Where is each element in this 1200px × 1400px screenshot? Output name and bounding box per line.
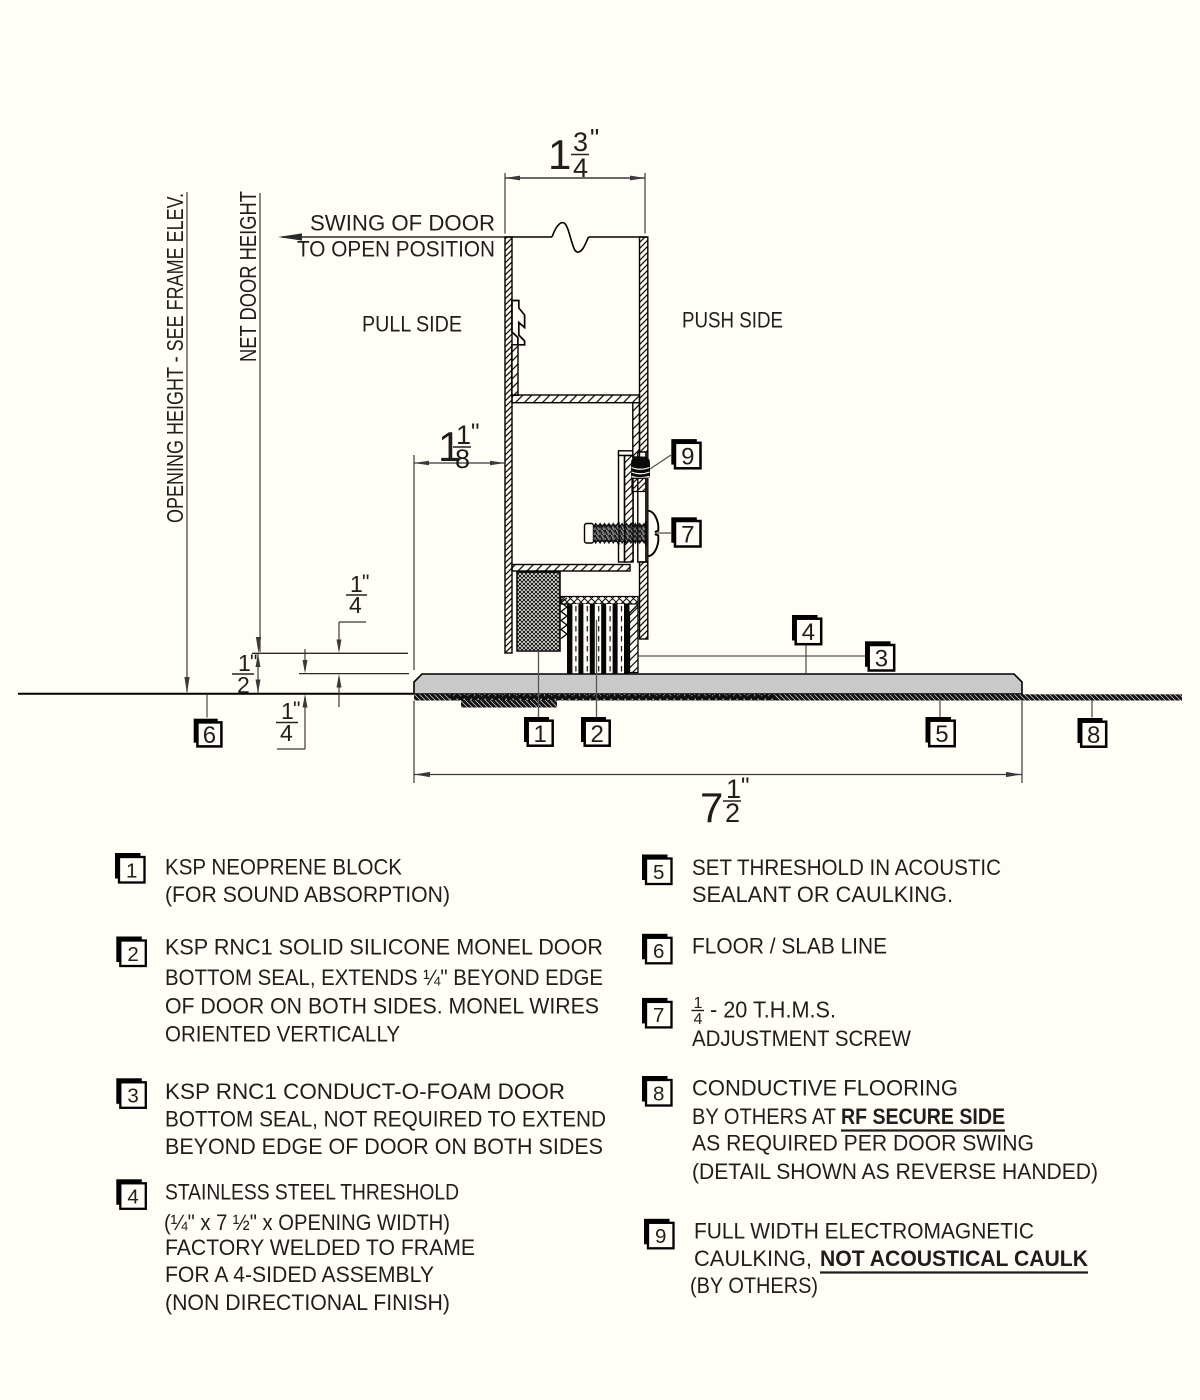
svg-text:8: 8 [1087, 722, 1100, 749]
svg-text:2: 2 [237, 672, 250, 698]
svg-text:- 20 T.H.M.S.: - 20 T.H.M.S. [710, 997, 836, 1023]
svg-text:6: 6 [203, 722, 216, 749]
svg-text:": " [362, 571, 369, 594]
svg-text:8: 8 [653, 1082, 664, 1105]
svg-text:NET DOOR HEIGHT: NET DOOR HEIGHT [235, 191, 261, 362]
svg-text:4: 4 [349, 592, 362, 618]
svg-text:FOR A 4-SIDED ASSEMBLY: FOR A 4-SIDED ASSEMBLY [165, 1262, 434, 1287]
svg-text:5: 5 [653, 861, 664, 884]
svg-text:(¼" x 7 ½" x OPENING WIDTH): (¼" x 7 ½" x OPENING WIDTH) [164, 1210, 450, 1235]
svg-text:2: 2 [591, 721, 604, 748]
svg-text:OPENING HEIGHT - SEE FRAME ELE: OPENING HEIGHT - SEE FRAME ELEV. [162, 193, 188, 523]
svg-text:7: 7 [681, 521, 694, 548]
svg-text:FACTORY WELDED TO FRAME: FACTORY WELDED TO FRAME [165, 1235, 475, 1260]
svg-text:": " [590, 123, 599, 153]
svg-text:5: 5 [935, 721, 948, 748]
svg-text:PULL SIDE: PULL SIDE [362, 312, 462, 337]
svg-text:CONDUCTIVE FLOORING: CONDUCTIVE FLOORING [692, 1076, 958, 1101]
svg-text:(BY OTHERS): (BY OTHERS) [690, 1273, 818, 1298]
svg-text:3: 3 [127, 1085, 138, 1108]
svg-text:ADJUSTMENT SCREW: ADJUSTMENT SCREW [692, 1026, 911, 1051]
svg-text:4: 4 [280, 720, 293, 746]
svg-text:NOT ACOUSTICAL CAULK: NOT ACOUSTICAL CAULK [820, 1246, 1088, 1271]
svg-text:BOTTOM SEAL, EXTENDS ¼" BEYOND: BOTTOM SEAL, EXTENDS ¼" BEYOND EDGE [165, 965, 603, 990]
svg-text:RF SECURE SIDE: RF SECURE SIDE [841, 1104, 1005, 1129]
svg-text:BOTTOM SEAL, NOT REQUIRED TO E: BOTTOM SEAL, NOT REQUIRED TO EXTEND [165, 1107, 606, 1132]
svg-text:1: 1 [694, 995, 703, 1012]
svg-text:9: 9 [681, 443, 694, 470]
svg-text:PUSH SIDE: PUSH SIDE [682, 308, 783, 333]
svg-text:KSP RNC1 CONDUCT-O-FOAM DOOR: KSP RNC1 CONDUCT-O-FOAM DOOR [165, 1079, 565, 1104]
svg-text:1: 1 [534, 721, 547, 748]
svg-text:(FOR SOUND ABSORPTION): (FOR SOUND ABSORPTION) [165, 882, 450, 907]
svg-text:KSP RNC1 SOLID SILICONE MONEL: KSP RNC1 SOLID SILICONE MONEL DOOR [165, 935, 603, 960]
svg-text:OF DOOR ON BOTH SIDES. MONEL W: OF DOOR ON BOTH SIDES. MONEL WIRES [165, 994, 599, 1019]
svg-text:1: 1 [548, 131, 571, 178]
svg-text:4: 4 [127, 1186, 138, 1209]
svg-text:FULL WIDTH ELECTROMAGNETIC: FULL WIDTH ELECTROMAGNETIC [694, 1219, 1034, 1244]
svg-text:7: 7 [653, 1004, 664, 1027]
svg-text:KSP NEOPRENE BLOCK: KSP NEOPRENE BLOCK [165, 855, 402, 880]
svg-text:6: 6 [653, 940, 664, 963]
svg-text:8: 8 [455, 444, 470, 474]
svg-text:7: 7 [700, 784, 723, 831]
svg-text:BEYOND EDGE OF DOOR ON BOTH SI: BEYOND EDGE OF DOOR ON BOTH SIDES [165, 1134, 603, 1159]
svg-text:": " [471, 419, 480, 446]
svg-text:2: 2 [725, 798, 740, 828]
svg-text:SET THRESHOLD IN ACOUSTIC: SET THRESHOLD IN ACOUSTIC [692, 855, 1001, 880]
svg-text:": " [741, 773, 750, 800]
svg-text:AS REQUIRED PER DOOR SWING: AS REQUIRED PER DOOR SWING [692, 1131, 1034, 1156]
svg-text:": " [293, 698, 300, 721]
svg-text:(NON DIRECTIONAL FINISH): (NON DIRECTIONAL FINISH) [165, 1290, 450, 1315]
svg-text:9: 9 [655, 1225, 666, 1248]
svg-text:FLOOR / SLAB LINE: FLOOR / SLAB LINE [692, 934, 887, 959]
svg-text:4: 4 [802, 619, 815, 646]
svg-text:ORIENTED VERTICALLY: ORIENTED VERTICALLY [165, 1022, 400, 1047]
svg-text:(DETAIL SHOWN AS REVERSE HANDE: (DETAIL SHOWN AS REVERSE HANDED) [692, 1159, 1098, 1184]
svg-text:TO OPEN POSITION: TO OPEN POSITION [297, 237, 495, 262]
svg-text:SEALANT OR CAULKING.: SEALANT OR CAULKING. [692, 882, 953, 907]
svg-text:STAINLESS STEEL THRESHOLD: STAINLESS STEEL THRESHOLD [165, 1180, 459, 1205]
svg-text:1: 1 [126, 859, 137, 882]
svg-text:": " [250, 651, 257, 674]
svg-text:BY OTHERS AT: BY OTHERS AT [692, 1104, 836, 1129]
svg-text:SWING OF DOOR: SWING OF DOOR [310, 211, 495, 236]
svg-text:4: 4 [573, 153, 588, 183]
svg-text:3: 3 [875, 645, 888, 672]
svg-text:CAULKING,: CAULKING, [694, 1246, 812, 1271]
svg-text:2: 2 [127, 943, 138, 966]
